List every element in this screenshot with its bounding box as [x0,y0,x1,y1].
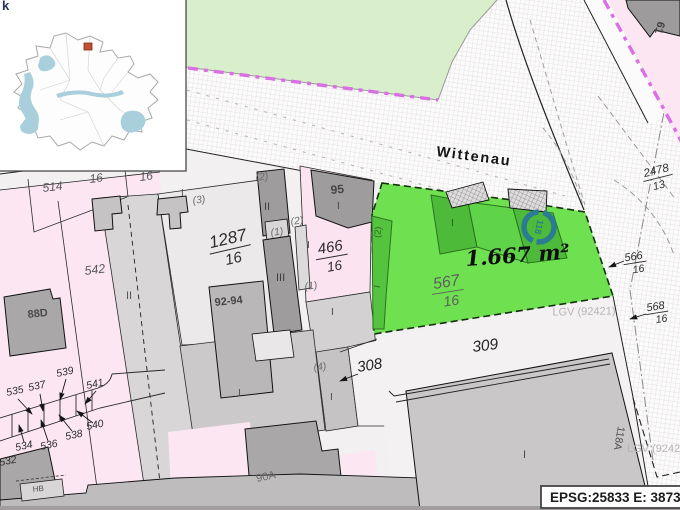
corner-text-fragment: k [2,0,10,13]
storey-I-d: I [330,391,333,403]
annex-2b: (2) [290,214,304,228]
storey-I-b: I [307,240,310,251]
storey-I-f: I [523,449,526,461]
berlin-overview-inset[interactable] [0,0,186,171]
storey-I-green: I [451,218,454,229]
annex-1a: (1) [270,225,284,239]
parcel-466-den: 16 [326,257,344,274]
watermark-lgv-1: LGV (92421) [552,305,615,318]
building-88d [4,289,66,356]
annex-2-green: (2) [372,226,383,238]
parcel-566-den: 16 [632,263,646,277]
parcel-id-514: 514 [42,179,64,195]
house-95: 95 [330,182,345,197]
storey-I-95: I [337,201,340,212]
building-hatched-2 [508,189,547,212]
epsg-statusbar: EPSG:25833 E: 38737 [541,486,680,508]
inset-location-marker [84,43,92,50]
cadastral-map-canvas[interactable]: Wittenau 1.667 m² 567 16 1287 16 466 16 … [0,0,680,510]
storey-II-b: II [264,201,270,213]
epsg-coordinates-label: EPSG:25833 E: 38737 [550,490,680,505]
cadastral-map-viewport[interactable]: Wittenau 1.667 m² 567 16 1287 16 466 16 … [0,0,680,510]
parcel-567-den: 16 [442,291,460,309]
parcel-id-542: 542 [84,262,106,278]
storey-I-e: I [238,387,241,399]
storey-II-a: II [126,290,132,302]
storey-I-a: I [181,188,184,199]
parcel-id-16a: 16 [89,170,104,186]
storey-III: III [276,272,285,284]
annex-4: (4) [313,360,327,374]
house-hb: HB [32,484,44,494]
house-88d: 88D [27,307,48,321]
parcel-id-309: 309 [471,336,499,356]
annex-2a: (2) [255,170,269,184]
parcel-568-den: 16 [655,312,669,326]
building-light-center [252,330,294,361]
annex-3: (3) [192,193,206,207]
watermark-lgv-2: LGV (92421) [627,443,680,455]
storey-I-c: I [331,306,334,318]
annex-1b: (1) [304,279,318,293]
